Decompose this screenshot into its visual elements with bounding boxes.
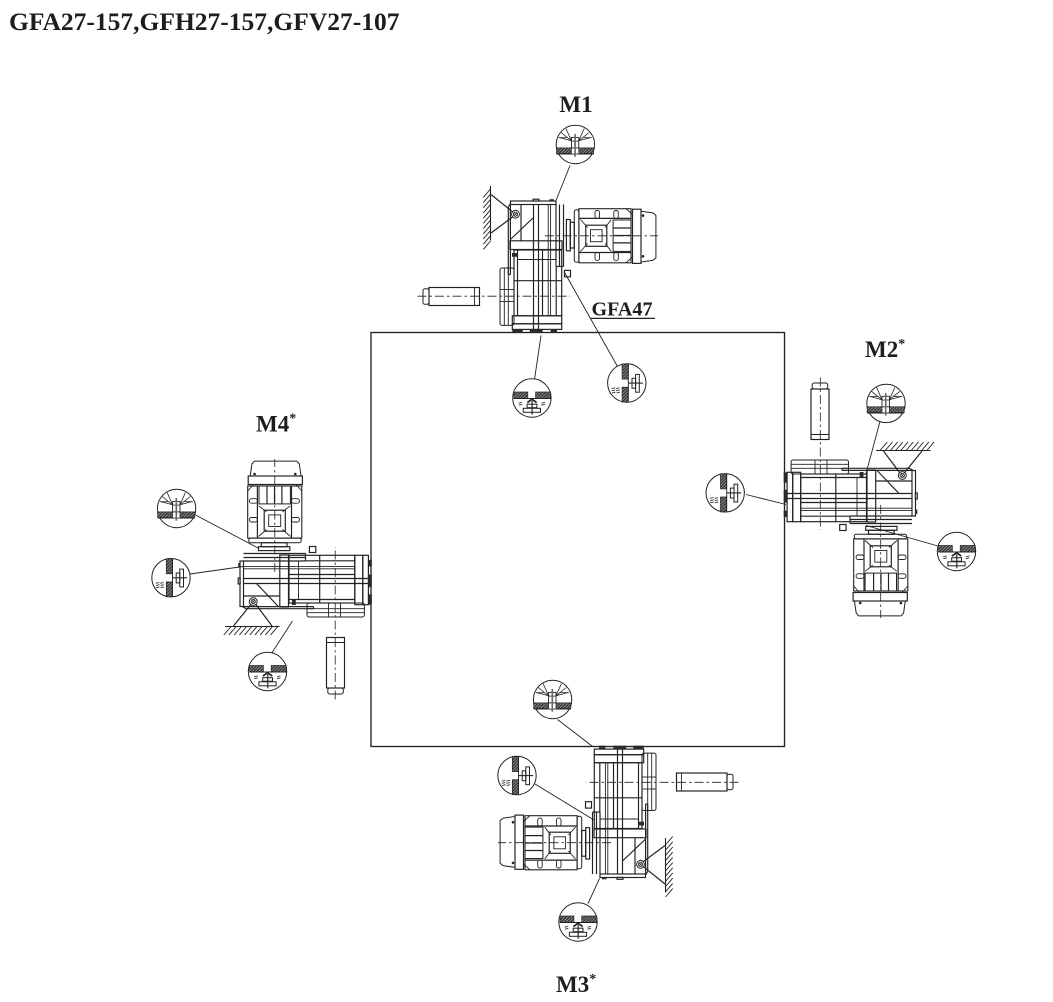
- svg-text:M1: M1: [559, 92, 592, 117]
- svg-text:M2*: M2*: [865, 337, 905, 362]
- svg-text:M4*: M4*: [256, 412, 296, 437]
- svg-text:M3*: M3*: [556, 972, 596, 997]
- svg-text:GFA27-157,GFH27-157,GFV27-107: GFA27-157,GFH27-157,GFV27-107: [9, 7, 400, 36]
- svg-text:GFA47: GFA47: [592, 299, 653, 321]
